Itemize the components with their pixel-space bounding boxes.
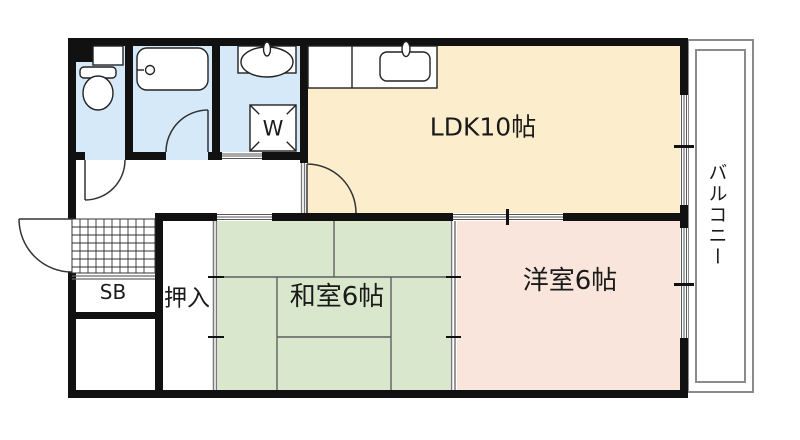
washroom-sliding-door bbox=[222, 152, 262, 160]
wall-hall-top-b bbox=[125, 152, 166, 160]
washer-label: W bbox=[263, 119, 284, 140]
genkan-step-line bbox=[72, 276, 155, 279]
oshiire-label: 押入 bbox=[164, 288, 210, 311]
ldk-label: LDK10帖 bbox=[430, 115, 536, 140]
toilet-door bbox=[85, 160, 125, 200]
balcony-label: バルコニー bbox=[707, 163, 726, 268]
bathtub-icon bbox=[137, 48, 208, 90]
wall-bottom bbox=[68, 390, 688, 398]
ldk-door-jamb bbox=[302, 163, 305, 213]
floor-plan-drawing bbox=[0, 0, 800, 440]
wall-genkan-right bbox=[155, 213, 163, 390]
wall-hall-top-d bbox=[262, 152, 308, 160]
kitchen-sink-icon bbox=[308, 42, 437, 89]
yoshitsu-floor bbox=[457, 221, 680, 390]
vanity-sink-icon bbox=[238, 42, 296, 77]
wall-bath-washroom bbox=[212, 46, 220, 152]
wall-toilet-bath bbox=[125, 46, 133, 152]
washitsu-sliding-door bbox=[217, 213, 272, 221]
wall-sb-bottom bbox=[68, 312, 163, 319]
wall-ldk-yoshitsu bbox=[563, 213, 688, 221]
floor-plan: LDK10帖 和室6帖 洋室6帖 押入 SB W バルコニー bbox=[0, 0, 800, 440]
wall-left-lower bbox=[68, 272, 76, 398]
shoebox-label: SB bbox=[100, 282, 126, 302]
wall-right-3 bbox=[680, 338, 688, 398]
wall-left-upper bbox=[68, 38, 76, 219]
entrance-door bbox=[19, 219, 72, 272]
wall-hall-bottom-a bbox=[155, 213, 217, 221]
wall-washroom-ldk bbox=[300, 46, 308, 163]
wall-hall-top-c bbox=[208, 152, 222, 160]
wall-right-1 bbox=[680, 46, 688, 95]
genkan bbox=[72, 219, 155, 279]
wall-hall-top-a bbox=[76, 152, 85, 160]
wall-top bbox=[68, 38, 688, 46]
yoshitsu-label: 洋室6帖 bbox=[523, 268, 618, 294]
wall-hall-bottom-b bbox=[272, 213, 453, 221]
washitsu-label: 和室6帖 bbox=[290, 284, 385, 310]
